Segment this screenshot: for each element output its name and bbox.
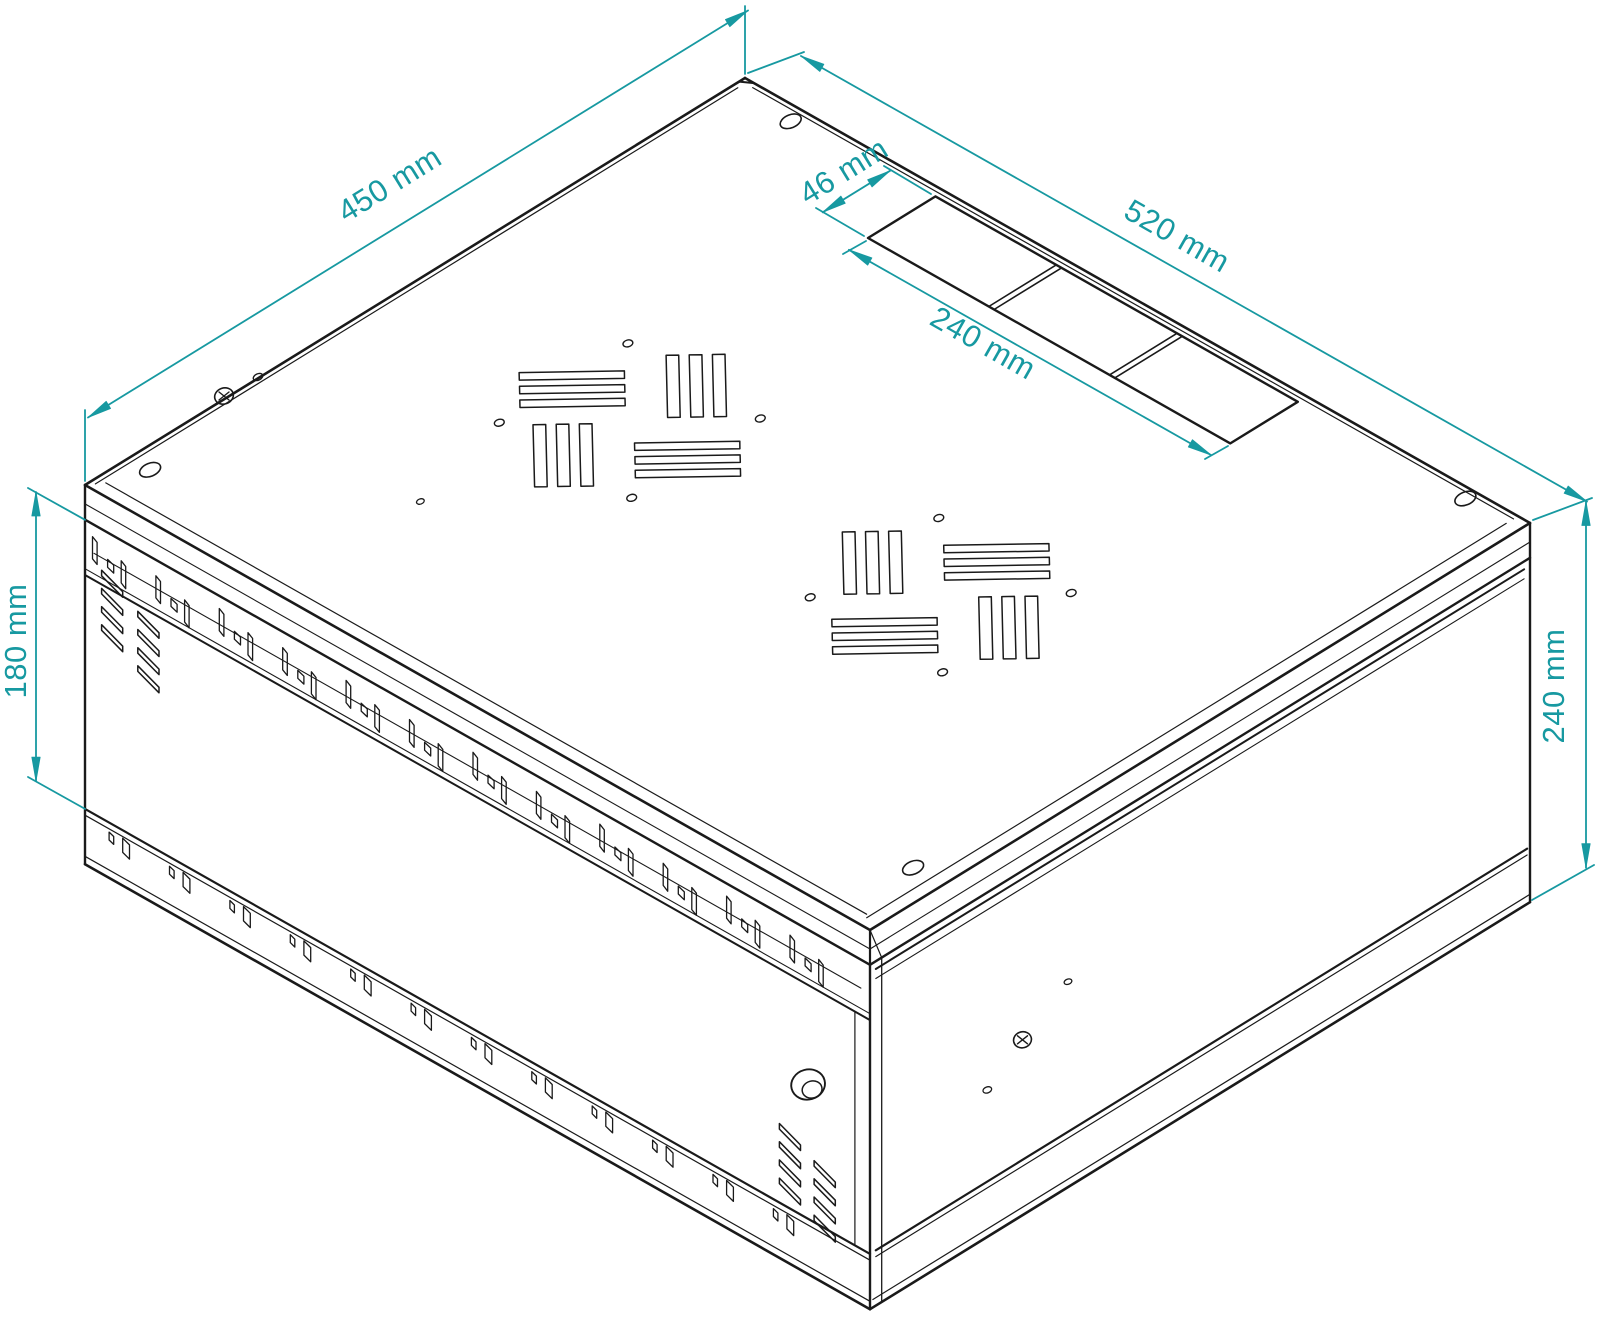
drawing-page: 450 mm 520 mm 46 mm 240 mm 180 mm 240 mm [0, 0, 1600, 1334]
dim-label-top-left-450: 450 mm [331, 139, 447, 229]
dimension-labels: 450 mm 520 mm 46 mm 240 mm 180 mm 240 mm [0, 131, 1571, 744]
technical-drawing: 450 mm 520 mm 46 mm 240 mm 180 mm 240 mm [0, 0, 1600, 1334]
dim-label-side-240: 240 mm [1536, 629, 1571, 744]
dim-label-knockout-240: 240 mm [925, 299, 1042, 386]
cabinet-line-art [85, 78, 1530, 1309]
dimension-lines [28, 6, 1594, 900]
dim-label-front-180: 180 mm [0, 584, 33, 699]
dim-label-top-right-520: 520 mm [1119, 192, 1236, 279]
